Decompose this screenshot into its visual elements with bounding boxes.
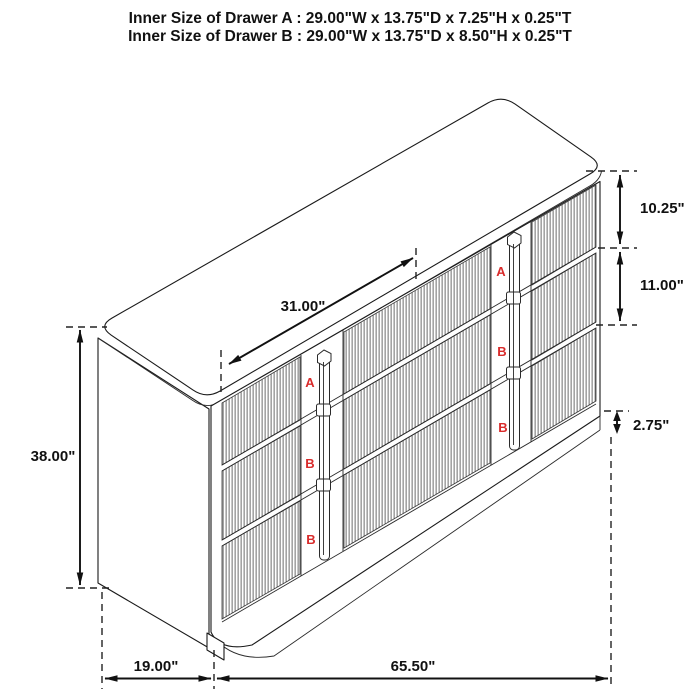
drawer-b-height-label: 11.00" <box>640 277 684 294</box>
drawer-a-label-right: A <box>496 264 506 279</box>
base-height-label: 2.75" <box>633 417 669 434</box>
side-depth-label: 19.00" <box>134 658 179 675</box>
drawer-b2-label-right: B <box>498 420 507 435</box>
header-drawer-b-size: Inner Size of Drawer B : 29.00"W x 13.75… <box>128 28 572 45</box>
overall-width-label: 65.50" <box>391 658 436 675</box>
drawer-b2-label-left: B <box>306 532 315 547</box>
dimension-diagram: Inner Size of Drawer A : 29.00"W x 13.75… <box>0 0 700 700</box>
drawer-a-height-label: 10.25" <box>640 200 685 217</box>
drawer-a-label-left: A <box>305 375 315 390</box>
header-drawer-a-size: Inner Size of Drawer A : 29.00"W x 13.75… <box>129 10 572 27</box>
cabinet-drawing: A B B A B B <box>98 99 602 660</box>
top-width-label: 31.00" <box>281 298 326 315</box>
diagram-canvas: Inner Size of Drawer A : 29.00"W x 13.75… <box>0 0 700 700</box>
drawer-b1-label-left: B <box>305 456 314 471</box>
drawer-b1-label-right: B <box>497 344 506 359</box>
dim-drawer-heights: 10.25" 11.00" <box>586 171 685 325</box>
dim-base-height: 2.75" <box>604 411 669 434</box>
overall-height-label: 38.00" <box>31 448 76 465</box>
